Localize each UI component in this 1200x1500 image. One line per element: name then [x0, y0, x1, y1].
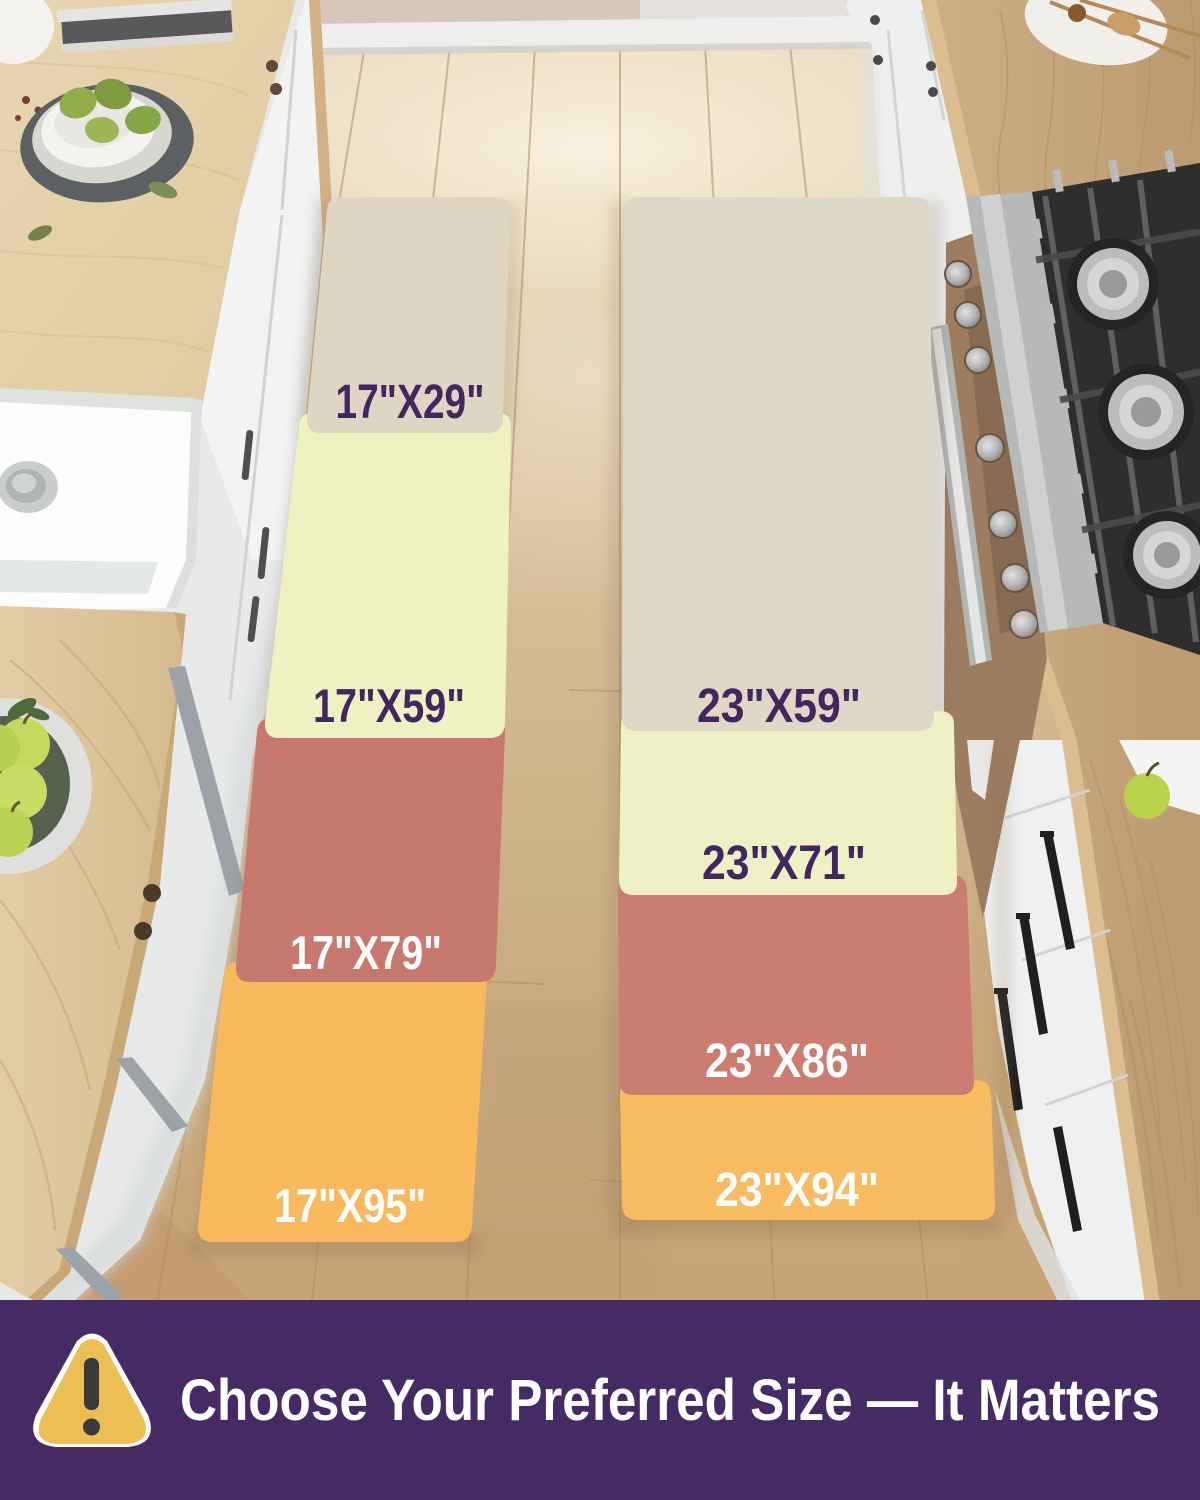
svg-text:17"X79": 17"X79"	[290, 926, 442, 979]
svg-text:23"X59": 23"X59"	[697, 680, 861, 733]
svg-text:23"X86": 23"X86"	[705, 1035, 869, 1088]
svg-text:17"X59": 17"X59"	[313, 679, 465, 732]
svg-text:Choose Your Preferred Size — I: Choose Your Preferred Size — It Matters	[180, 1368, 1160, 1433]
svg-text:23"X94": 23"X94"	[715, 1164, 879, 1217]
svg-text:17"X95": 17"X95"	[274, 1179, 426, 1232]
svg-text:23"X71": 23"X71"	[702, 837, 866, 890]
svg-text:17"X29": 17"X29"	[336, 376, 485, 429]
